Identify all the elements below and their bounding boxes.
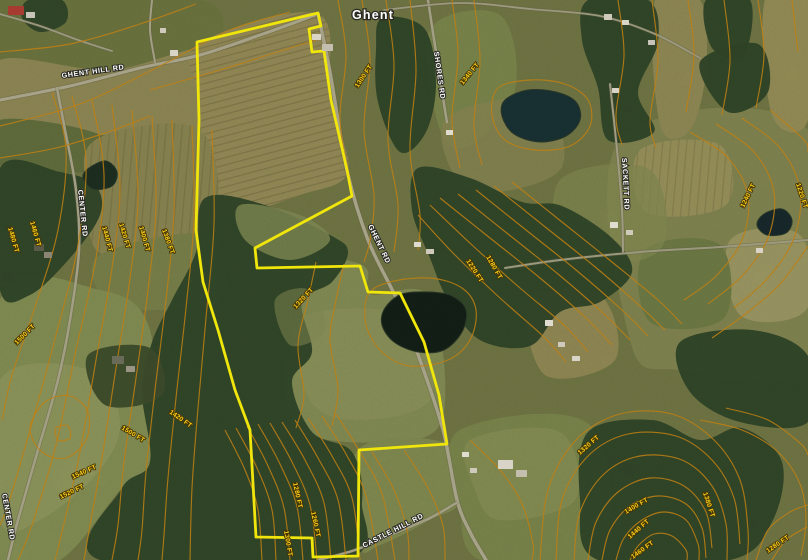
aerial-map[interactable]: Ghent GHENT HILL RDSHORES RDGHENT RDCENT…: [0, 0, 808, 560]
building: [462, 452, 469, 457]
building: [545, 320, 553, 326]
town-label: Ghent: [352, 8, 394, 22]
building: [160, 28, 166, 33]
building: [470, 468, 477, 473]
building: [648, 40, 655, 45]
building: [558, 342, 565, 347]
terrain-grain-texture: [0, 0, 808, 560]
building: [516, 470, 527, 477]
building: [622, 20, 629, 25]
building: [8, 6, 24, 15]
building: [610, 222, 618, 228]
building: [112, 356, 124, 364]
building: [572, 356, 580, 361]
building: [498, 460, 513, 469]
building: [126, 366, 135, 372]
map-viewport[interactable]: Ghent GHENT HILL RDSHORES RDGHENT RDCENT…: [0, 0, 808, 560]
building: [604, 14, 612, 20]
building: [414, 242, 421, 247]
building: [26, 12, 35, 18]
building: [426, 249, 434, 254]
building: [756, 248, 763, 253]
building: [312, 34, 321, 40]
building: [322, 44, 333, 51]
building: [446, 130, 453, 135]
building: [44, 252, 52, 258]
building: [170, 50, 178, 56]
building: [626, 230, 633, 235]
building: [612, 88, 619, 93]
